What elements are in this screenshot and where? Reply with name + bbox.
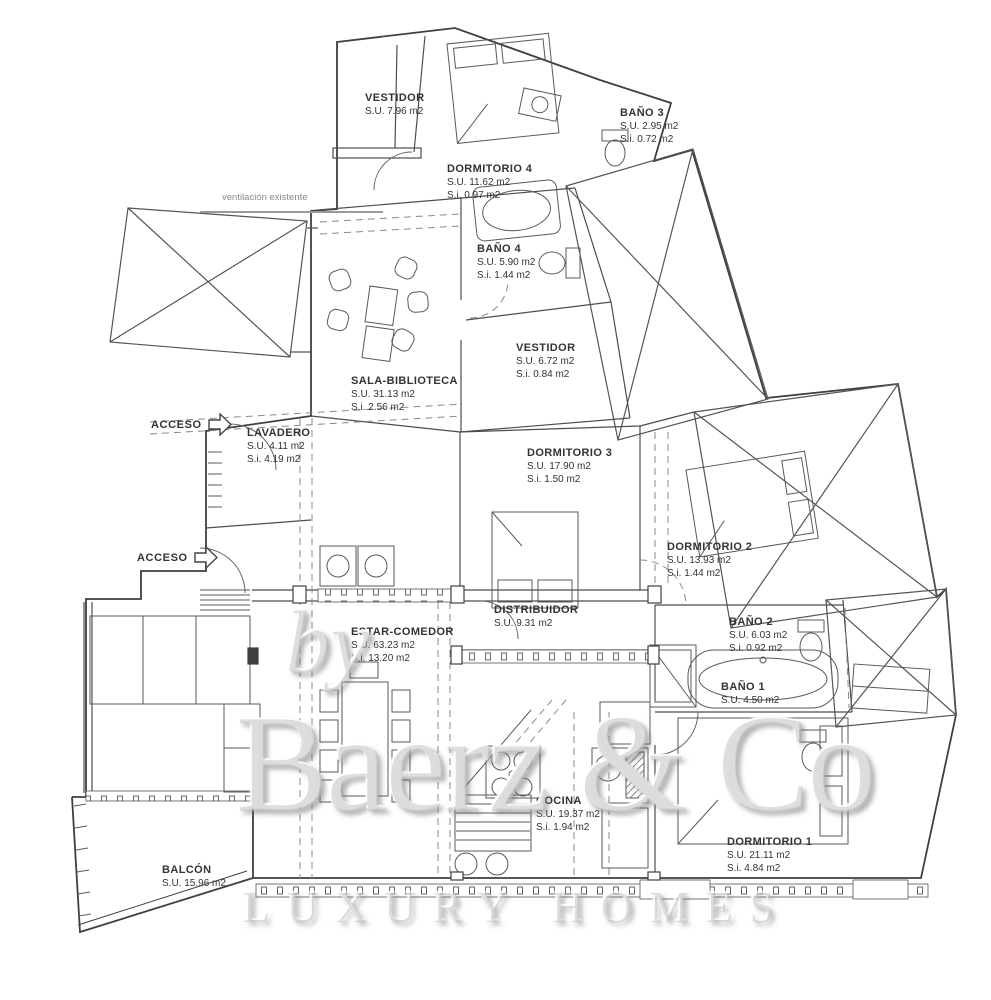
sink-icon-cocina (592, 702, 650, 868)
room-area-si: S.i. 4.84 m2 (727, 862, 812, 875)
room-area-su: S.U. 4.11 m2 (247, 440, 310, 453)
room-area-si: S.i. 13.20 m2 (351, 652, 454, 665)
room-label-dormitorio-4: DORMITORIO 4 S.U. 11.62 m2 S.i. 0.97 m2 (447, 163, 532, 202)
arrow-right-icon (208, 413, 232, 436)
acceso-label-mid: ACCESO (137, 546, 218, 569)
room-label-dormitorio-2: DORMITORIO 2 S.U. 13.93 m2 S.i. 1.44 m2 (667, 541, 752, 580)
room-name: DISTRIBUIDOR (494, 604, 578, 617)
room-name: BALCÓN (162, 864, 226, 877)
room-name: COCINA (536, 795, 600, 808)
room-area-su: S.U. 31.13 m2 (351, 388, 458, 401)
room-label-vestidor-mid: VESTIDOR S.U. 6.72 m2 S.i. 0.84 m2 (516, 342, 575, 381)
room-label-vestidor-top: VESTIDOR S.U. 7.96 m2 (365, 92, 424, 118)
bed-icon-dorm1 (678, 718, 848, 844)
room-label-cocina: COCINA S.U. 19.37 m2 S.i. 1.94 m2 (536, 795, 600, 834)
room-area-su: S.U. 13.93 m2 (667, 554, 752, 567)
room-area-si: S.i. 1.50 m2 (527, 473, 612, 486)
table-chairs-icon-sala (326, 255, 429, 362)
floorplan-drawing (0, 0, 991, 1000)
stove-icon-cocina (486, 746, 540, 798)
ventilation-note: ventilación existente (222, 192, 308, 203)
room-area-si: S.i. 0.92 m2 (729, 642, 787, 655)
room-area-su: S.U. 63.23 m2 (351, 639, 454, 652)
room-name: DORMITORIO 2 (667, 541, 752, 554)
room-area-si: S.i. 1.94 m2 (536, 821, 600, 834)
room-area-su: S.U. 2.95 m2 (620, 120, 678, 133)
arrow-right-icon (194, 546, 218, 569)
room-area-su: S.U. 21.11 m2 (727, 849, 812, 862)
room-area-su: S.U. 5.90 m2 (477, 256, 535, 269)
room-name: VESTIDOR (516, 342, 575, 355)
room-label-distribuidor: DISTRIBUIDOR S.U. 9.31 m2 (494, 604, 578, 630)
room-name: DORMITORIO 3 (527, 447, 612, 460)
room-area-su: S.U. 11.62 m2 (447, 176, 532, 189)
room-area-su: S.U. 6.03 m2 (729, 629, 787, 642)
room-name: BAÑO 1 (721, 681, 779, 694)
room-area-si: S.i. 0.84 m2 (516, 368, 575, 381)
bed-icon-dorm4 (447, 33, 559, 143)
room-area-si: S.i. 0.72 m2 (620, 133, 678, 146)
room-label-balcon: BALCÓN S.U. 15.96 m2 (162, 864, 226, 890)
room-name: BAÑO 3 (620, 107, 678, 120)
room-area-su: S.U. 9.31 m2 (494, 617, 578, 630)
wardrobe-icon-dorm1 (851, 664, 930, 713)
washer-icons-lavadero (320, 546, 394, 586)
room-name: BAÑO 2 (729, 616, 787, 629)
room-name: SALA-BIBLIOTECA (351, 375, 458, 388)
room-area-si: S.i. 1.44 m2 (667, 567, 752, 580)
bed-icon-dorm3 (492, 512, 578, 608)
misc-hatch-strips (74, 452, 250, 916)
room-area-su: S.U. 7.96 m2 (365, 105, 424, 118)
room-area-su: S.U. 6.72 m2 (516, 355, 575, 368)
room-area-su: S.U. 17.90 m2 (527, 460, 612, 473)
acceso-text: ACCESO (151, 419, 202, 431)
room-area-su: S.U. 15.96 m2 (162, 877, 226, 890)
room-label-estar-comedor: ESTAR-COMEDOR S.U. 63.23 m2 S.i. 13.20 m… (351, 626, 454, 665)
room-label-bano-3: BAÑO 3 S.U. 2.95 m2 S.i. 0.72 m2 (620, 107, 678, 146)
room-label-lavadero: LAVADERO S.U. 4.11 m2 S.i. 4.19 m2 (247, 427, 310, 466)
room-area-si: S.i. 1.44 m2 (477, 269, 535, 282)
acceso-label-top: ACCESO (151, 413, 232, 436)
room-name: VESTIDOR (365, 92, 424, 105)
room-name: DORMITORIO 1 (727, 836, 812, 849)
room-name: DORMITORIO 4 (447, 163, 532, 176)
toilet-icon-bano1 (800, 730, 826, 771)
floorplan-page: VESTIDOR S.U. 7.96 m2 DORMITORIO 4 S.U. … (0, 0, 991, 1000)
sofa-icon-estar (90, 616, 260, 792)
room-label-dormitorio-1: DORMITORIO 1 S.U. 21.11 m2 S.i. 4.84 m2 (727, 836, 812, 875)
room-label-dormitorio-3: DORMITORIO 3 S.U. 17.90 m2 S.i. 1.50 m2 (527, 447, 612, 486)
dining-table-icon (320, 662, 410, 802)
room-name: LAVADERO (247, 427, 310, 440)
toilet-icon-bano4 (539, 248, 580, 278)
room-area-si: S.i. 0.97 m2 (447, 189, 532, 202)
room-name: ESTAR-COMEDOR (351, 626, 454, 639)
patio-right (694, 384, 937, 628)
room-area-si: S.i. 2.56 m2 (351, 401, 458, 414)
room-name: BAÑO 4 (477, 243, 535, 256)
patio-top-left (110, 208, 307, 357)
room-area-su: S.U. 19.37 m2 (536, 808, 600, 821)
patio-top-right (566, 149, 768, 440)
toilet-icon-bano2 (798, 620, 824, 661)
room-label-bano-2: BAÑO 2 S.U. 6.03 m2 S.i. 0.92 m2 (729, 616, 787, 655)
room-label-bano-4: BAÑO 4 S.U. 5.90 m2 S.i. 1.44 m2 (477, 243, 535, 282)
room-label-sala-biblioteca: SALA-BIBLIOTECA S.U. 31.13 m2 S.i. 2.56 … (351, 375, 458, 414)
room-label-bano-1: BAÑO 1 S.U. 4.50 m2 (721, 681, 779, 707)
room-area-si: S.i. 4.19 m2 (247, 453, 310, 466)
stairs-icon-cocina (455, 710, 531, 875)
acceso-text: ACCESO (137, 552, 188, 564)
room-area-su: S.U. 4.50 m2 (721, 694, 779, 707)
